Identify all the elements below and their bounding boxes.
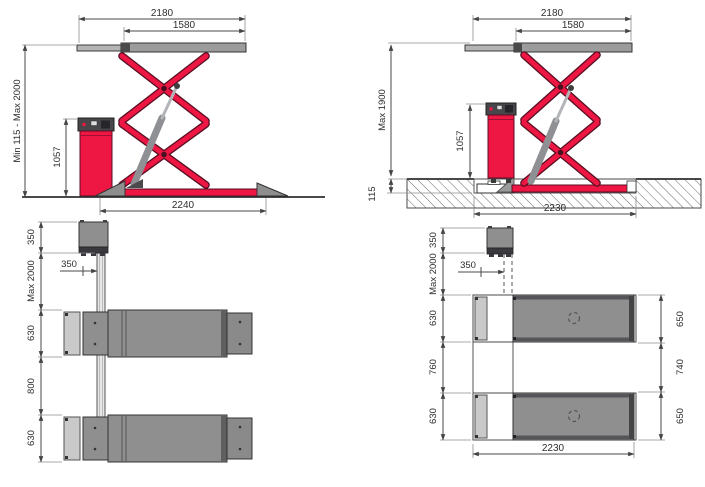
dim-track-width-front-label: 630 xyxy=(428,310,439,326)
pivot-pin xyxy=(161,86,167,92)
control-console xyxy=(78,118,114,196)
console-tab xyxy=(81,253,86,256)
control-console-plan xyxy=(487,226,513,257)
console-vent xyxy=(101,121,110,129)
base-frame xyxy=(119,189,259,196)
dim-console-height-label: 1057 xyxy=(52,146,63,167)
platform-hinge xyxy=(121,43,130,52)
scissor-lift-technical-drawing: 2180 1580 Min 115 - Max 2000 1057 2240 xyxy=(0,0,705,487)
pivot-pin xyxy=(558,84,564,90)
extension-ramp xyxy=(227,418,252,459)
rod-clevis xyxy=(568,85,574,91)
dim-outer-width-rear-label: 650 xyxy=(675,408,686,424)
platform-track-rear xyxy=(473,393,636,440)
console-tab xyxy=(498,254,503,257)
base-end-bracket xyxy=(627,181,636,192)
console-connector-strip xyxy=(487,248,513,254)
console-display xyxy=(497,106,502,110)
console-foot xyxy=(506,179,511,183)
dim-base-length-label: 2230 xyxy=(544,203,567,214)
dim-track-width-rear-label: 630 xyxy=(428,408,439,424)
extension-ramp xyxy=(227,313,252,354)
dim-base-length-label: 2240 xyxy=(172,200,195,211)
console-box xyxy=(79,222,108,247)
platform-track-rear xyxy=(64,415,252,462)
dim-overall-width-label: 2180 xyxy=(151,8,174,19)
rod-clevis xyxy=(174,83,180,89)
dim-track-gap-label: 760 xyxy=(428,359,439,375)
console-tab xyxy=(506,254,511,257)
console-tab xyxy=(100,253,105,256)
dim-track-width-front-label: 630 xyxy=(26,325,37,341)
dim-drive-length-label: Max 2000 xyxy=(26,260,37,302)
drive-on-ramp xyxy=(475,395,487,438)
dim-track-width-rear-label: 630 xyxy=(26,430,37,446)
console-vent xyxy=(505,105,513,113)
dim-console-height-label: 1057 xyxy=(455,130,466,151)
drive-on-ramp xyxy=(475,297,487,340)
dim-console-depth-label: 350 xyxy=(428,232,439,248)
platform-end-strip xyxy=(221,416,227,461)
dim-outer-gap-label: 740 xyxy=(675,359,686,375)
dim-console-depth-label: 350 xyxy=(26,229,37,245)
platform-extension-plate xyxy=(77,45,124,51)
dim-height-range-label: Min 115 - Max 2000 xyxy=(12,79,23,162)
platform-hinge xyxy=(514,43,522,52)
platform xyxy=(121,43,246,52)
dim-pit-length-label: 2230 xyxy=(542,443,565,454)
platform-track-front xyxy=(64,310,252,357)
control-console-plan xyxy=(79,220,108,256)
console-foot xyxy=(491,179,496,183)
dim-track-gap-label: 800 xyxy=(26,378,37,394)
drawing-canvas: 2180 1580 Min 115 - Max 2000 1057 2240 xyxy=(0,0,705,487)
console-display xyxy=(91,121,97,126)
console-button-icon xyxy=(489,107,492,110)
drive-on-ramp xyxy=(64,312,80,355)
dim-overall-width-label: 2180 xyxy=(541,8,564,19)
platform-end-strip xyxy=(221,311,227,356)
dim-console-offset-label: 350 xyxy=(460,260,476,271)
dim-max-height-label: Max 1900 xyxy=(377,89,388,131)
platform-extension-plate xyxy=(465,45,517,51)
base-frame xyxy=(512,185,630,192)
platform-surface xyxy=(513,295,634,342)
lift-block xyxy=(83,417,108,460)
drive-on-ramp xyxy=(64,417,80,460)
platform xyxy=(514,43,632,52)
console-tab xyxy=(91,253,96,256)
console-tab xyxy=(489,254,494,257)
dim-console-offset-label: 350 xyxy=(61,259,77,270)
control-console xyxy=(486,103,516,183)
pivot-pin xyxy=(558,150,564,156)
console-cabinet xyxy=(488,115,514,178)
platform-track-front xyxy=(473,295,636,342)
platform-end-strip xyxy=(629,296,634,341)
dim-platform-length-label: 1580 xyxy=(562,20,585,31)
console-cabinet xyxy=(80,131,112,196)
console-button-icon xyxy=(82,123,86,127)
console-box xyxy=(487,228,513,248)
pivot-pin xyxy=(161,152,167,158)
dim-outer-width-front-label: 650 xyxy=(675,311,686,327)
dim-drive-length-label: Max 2000 xyxy=(428,253,439,295)
dim-recess-depth-label: 115 xyxy=(367,186,378,201)
platform-end-strip xyxy=(629,394,634,439)
dim-platform-length-label: 1580 xyxy=(173,20,196,31)
console-connector-strip xyxy=(79,247,108,253)
platform-surface xyxy=(513,393,634,440)
lift-block xyxy=(83,312,108,355)
